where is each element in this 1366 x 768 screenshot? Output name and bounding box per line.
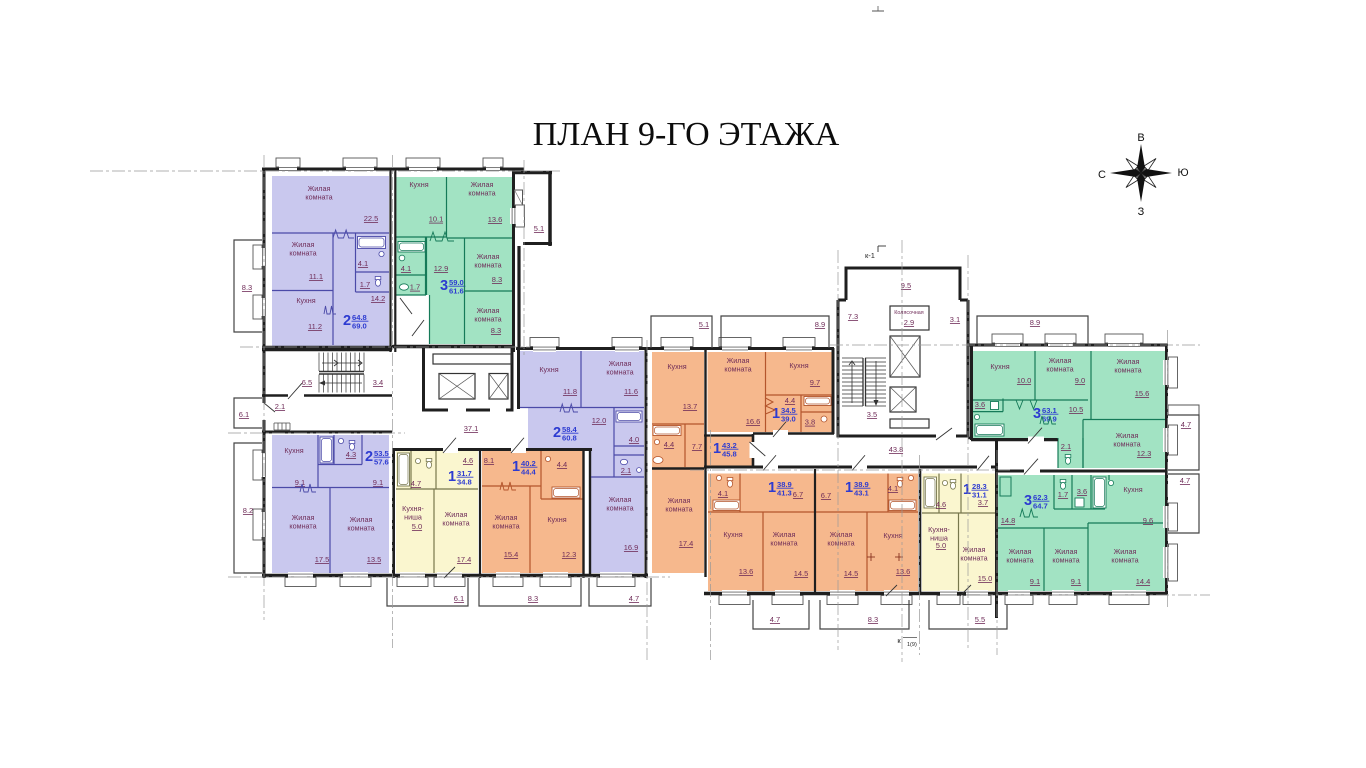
svg-text:комната: комната [1006, 556, 1033, 565]
svg-text:4.7: 4.7 [411, 479, 421, 488]
svg-text:1: 1 [768, 480, 776, 496]
svg-text:Кухня: Кухня [409, 180, 428, 189]
svg-text:7.3: 7.3 [848, 312, 858, 321]
svg-text:2.9: 2.9 [904, 318, 914, 327]
svg-text:5.0: 5.0 [412, 522, 422, 531]
svg-text:1: 1 [845, 480, 853, 496]
svg-text:11.6: 11.6 [624, 387, 638, 396]
svg-text:9.1: 9.1 [295, 478, 305, 487]
svg-text:Кухня: Кухня [284, 446, 303, 455]
svg-text:12.0: 12.0 [592, 416, 607, 425]
svg-text:11.8: 11.8 [563, 387, 577, 396]
svg-text:1(9): 1(9) [907, 642, 917, 648]
svg-text:комната: комната [960, 554, 987, 563]
svg-text:3.1: 3.1 [950, 315, 960, 324]
svg-text:8.3: 8.3 [492, 275, 502, 284]
svg-text:69.0: 69.0 [352, 321, 367, 330]
svg-text:Кухня: Кухня [723, 530, 742, 539]
svg-text:Кухня: Кухня [789, 361, 808, 370]
svg-text:7.7: 7.7 [692, 442, 702, 451]
svg-text:3: 3 [440, 278, 448, 294]
svg-text:9.7: 9.7 [810, 378, 820, 387]
svg-text:44.4: 44.4 [521, 467, 537, 476]
svg-text:64.7: 64.7 [1033, 501, 1048, 510]
svg-text:60.8: 60.8 [562, 433, 577, 442]
svg-text:34.8: 34.8 [457, 477, 472, 486]
svg-text:6.1: 6.1 [239, 410, 249, 419]
svg-text:9.1: 9.1 [1030, 577, 1040, 586]
svg-text:комната: комната [827, 539, 854, 548]
svg-text:1.7: 1.7 [1058, 490, 1068, 499]
svg-text:комната: комната [665, 505, 692, 514]
svg-text:39.0: 39.0 [781, 414, 796, 423]
svg-text:Колясочная: Колясочная [894, 310, 924, 316]
svg-text:З: З [1138, 206, 1145, 218]
svg-text:ПЛАН 9-ГО ЭТАЖА: ПЛАН 9-ГО ЭТАЖА [533, 116, 840, 153]
svg-text:Кухня: Кухня [990, 362, 1009, 371]
svg-text:4.1: 4.1 [718, 489, 728, 498]
svg-text:3.6: 3.6 [1077, 487, 1087, 496]
svg-text:1: 1 [713, 441, 721, 457]
svg-text:комната: комната [442, 519, 469, 528]
svg-text:2: 2 [553, 425, 561, 441]
svg-text:4.6: 4.6 [936, 500, 946, 509]
svg-text:9.1: 9.1 [1071, 577, 1081, 586]
svg-text:Ю: Ю [1177, 167, 1188, 179]
svg-text:37.1: 37.1 [464, 424, 479, 433]
svg-text:комната: комната [347, 524, 374, 533]
svg-text:4.6: 4.6 [463, 456, 473, 465]
svg-text:13.6: 13.6 [739, 567, 754, 576]
svg-text:57.6: 57.6 [374, 457, 389, 466]
svg-text:17.5: 17.5 [315, 555, 330, 564]
svg-text:6.1: 6.1 [454, 594, 464, 603]
svg-text:3: 3 [1024, 493, 1032, 509]
svg-text:4.7: 4.7 [1181, 420, 1191, 429]
svg-text:5.1: 5.1 [699, 320, 709, 329]
svg-text:41.3: 41.3 [777, 488, 792, 497]
svg-text:4.7: 4.7 [629, 594, 639, 603]
svg-text:комната: комната [1114, 366, 1141, 375]
svg-text:2: 2 [365, 449, 373, 465]
svg-text:4.3: 4.3 [346, 450, 356, 459]
svg-text:8.3: 8.3 [868, 615, 878, 624]
svg-text:5.1: 5.1 [534, 224, 544, 233]
svg-text:комната: комната [1052, 556, 1079, 565]
svg-text:14.5: 14.5 [794, 569, 809, 578]
svg-text:комната: комната [606, 504, 633, 513]
svg-text:13.7: 13.7 [683, 402, 698, 411]
svg-text:комната: комната [606, 368, 633, 377]
svg-text:комната: комната [1111, 556, 1138, 565]
svg-text:Кухня: Кухня [547, 515, 566, 524]
svg-text:4.1: 4.1 [358, 259, 368, 268]
svg-text:12.9: 12.9 [434, 264, 449, 273]
svg-text:1: 1 [512, 459, 520, 475]
svg-text:14.4: 14.4 [1136, 577, 1151, 586]
svg-text:комната: комната [289, 249, 316, 258]
svg-text:61.6: 61.6 [449, 286, 464, 295]
svg-text:15.0: 15.0 [978, 574, 993, 583]
svg-text:10.1: 10.1 [429, 215, 444, 224]
svg-text:4.4: 4.4 [557, 460, 567, 469]
svg-text:комната: комната [724, 365, 751, 374]
svg-text:2.1: 2.1 [1061, 442, 1071, 451]
svg-text:14.2: 14.2 [371, 294, 386, 303]
svg-text:Кухня: Кухня [296, 296, 315, 305]
svg-text:4.7: 4.7 [1180, 476, 1190, 485]
svg-text:4.4: 4.4 [785, 396, 795, 405]
svg-text:5.5: 5.5 [975, 615, 985, 624]
svg-text:комната: комната [770, 539, 797, 548]
svg-text:6.7: 6.7 [793, 490, 803, 499]
svg-text:2: 2 [343, 313, 351, 329]
svg-text:С: С [1098, 169, 1106, 181]
svg-text:Кухня: Кухня [667, 362, 686, 371]
svg-text:13.5: 13.5 [367, 555, 382, 564]
svg-text:10.0: 10.0 [1017, 376, 1032, 385]
svg-text:9.0: 9.0 [1075, 376, 1085, 385]
svg-text:11.1: 11.1 [309, 272, 323, 281]
svg-text:3.6: 3.6 [975, 400, 985, 409]
svg-text:12.3: 12.3 [562, 550, 577, 559]
svg-text:45.8: 45.8 [722, 449, 737, 458]
svg-text:11.2: 11.2 [308, 322, 322, 331]
svg-text:ниша: ниша [404, 513, 422, 522]
svg-text:комната: комната [1113, 440, 1140, 449]
svg-text:комната: комната [468, 189, 495, 198]
svg-text:17.4: 17.4 [679, 539, 694, 548]
svg-text:14.5: 14.5 [844, 569, 859, 578]
svg-text:9.6: 9.6 [1143, 516, 1153, 525]
svg-text:14.8: 14.8 [1001, 516, 1016, 525]
svg-text:43.1: 43.1 [854, 488, 870, 497]
svg-text:13.6: 13.6 [896, 567, 911, 576]
svg-text:1: 1 [448, 469, 456, 485]
svg-text:4.7: 4.7 [770, 615, 780, 624]
svg-text:6.7: 6.7 [821, 491, 831, 500]
svg-text:5.0: 5.0 [936, 541, 946, 550]
svg-text:4.1: 4.1 [401, 264, 411, 273]
svg-text:10.5: 10.5 [1069, 405, 1084, 414]
svg-text:8.3: 8.3 [242, 283, 252, 292]
svg-text:Кухня: Кухня [1123, 485, 1142, 494]
svg-text:1.7: 1.7 [360, 280, 370, 289]
svg-text:15.4: 15.4 [504, 550, 519, 559]
svg-text:комната: комната [1046, 365, 1073, 374]
svg-text:8.3: 8.3 [528, 594, 538, 603]
svg-text:2.1: 2.1 [275, 402, 285, 411]
svg-text:3.8: 3.8 [805, 418, 815, 427]
svg-text:9.1: 9.1 [373, 478, 383, 487]
svg-text:1: 1 [963, 482, 971, 498]
svg-text:комната: комната [492, 522, 519, 531]
svg-text:43.8: 43.8 [889, 445, 904, 454]
svg-text:1: 1 [772, 406, 780, 422]
svg-text:2.1: 2.1 [621, 466, 631, 475]
svg-text:В: В [1137, 132, 1144, 144]
svg-text:комната: комната [305, 193, 332, 202]
svg-text:комната: комната [289, 522, 316, 531]
svg-text:комната: комната [474, 315, 501, 324]
svg-text:16.9: 16.9 [624, 543, 639, 552]
svg-text:8.1: 8.1 [484, 456, 494, 465]
svg-text:8.3: 8.3 [491, 326, 501, 335]
svg-text:8.9: 8.9 [815, 320, 825, 329]
svg-text:31.1: 31.1 [972, 490, 988, 499]
svg-text:4.1: 4.1 [888, 484, 898, 493]
svg-text:3.4: 3.4 [373, 378, 383, 387]
svg-text:4.4: 4.4 [664, 440, 674, 449]
svg-text:8.2: 8.2 [243, 506, 253, 515]
svg-text:13.6: 13.6 [488, 215, 503, 224]
svg-text:17.4: 17.4 [457, 555, 472, 564]
svg-text:15.6: 15.6 [1135, 389, 1150, 398]
svg-text:3.5: 3.5 [867, 410, 877, 419]
svg-text:комната: комната [474, 261, 501, 270]
svg-text:к-1: к-1 [865, 251, 875, 260]
svg-text:Кухня: Кухня [539, 365, 558, 374]
svg-text:4.0: 4.0 [629, 435, 639, 444]
svg-text:16.6: 16.6 [746, 417, 761, 426]
svg-text:Кухня: Кухня [883, 531, 902, 540]
svg-text:8.9: 8.9 [1030, 318, 1040, 327]
svg-text:12.3: 12.3 [1137, 449, 1152, 458]
svg-text:22.5: 22.5 [364, 214, 379, 223]
svg-text:1.7: 1.7 [410, 283, 420, 292]
svg-text:6.5: 6.5 [302, 378, 312, 387]
